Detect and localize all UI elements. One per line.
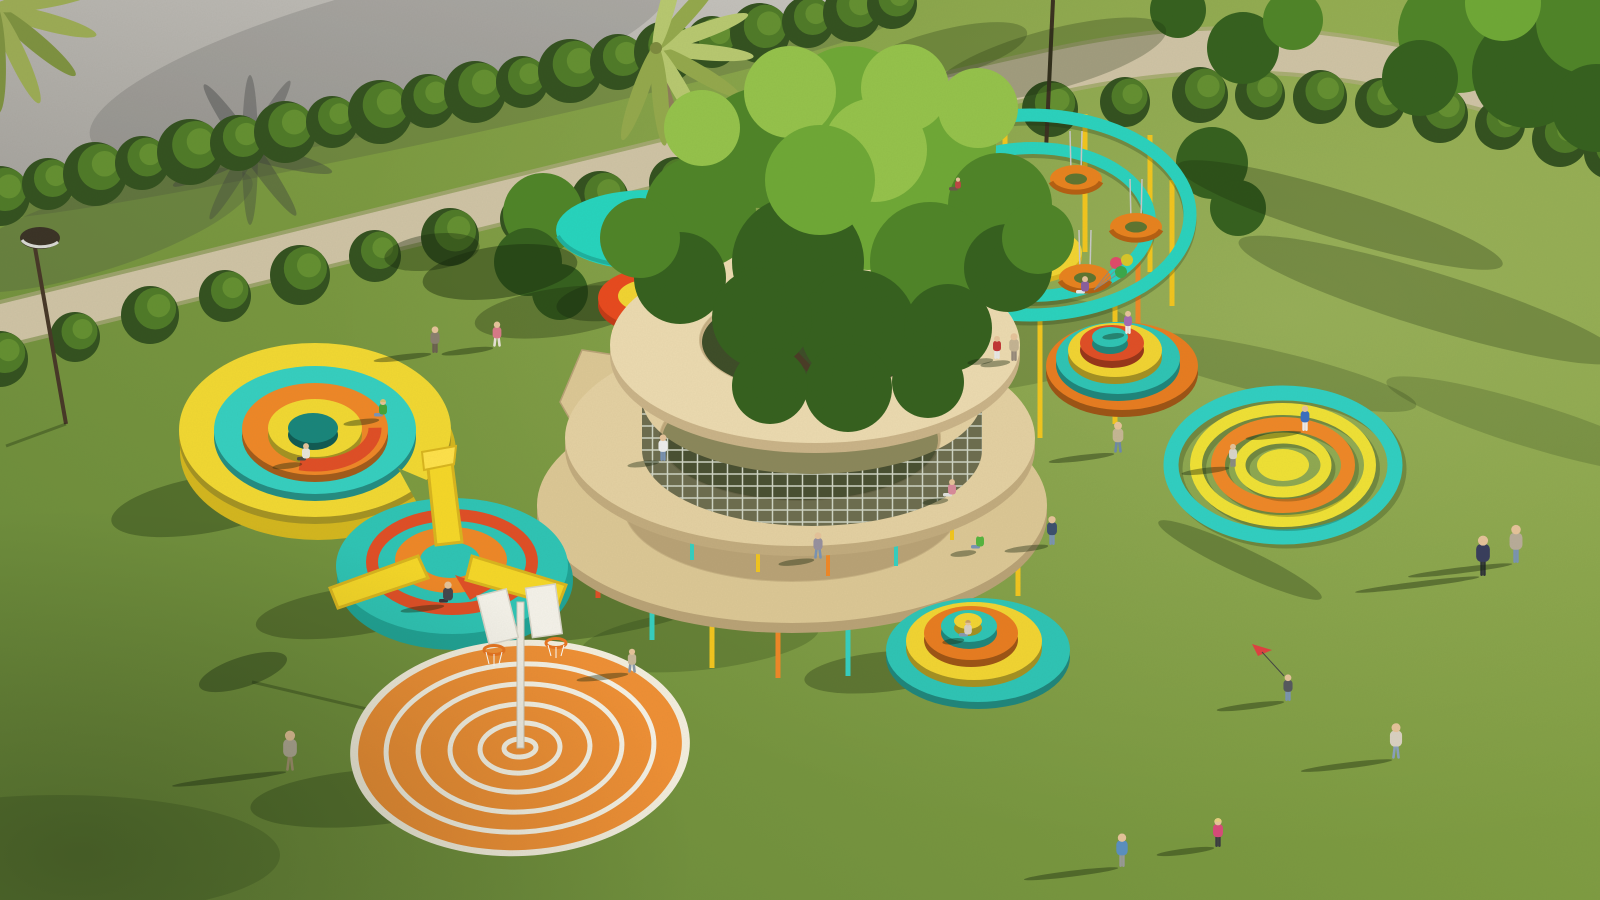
scene-svg [0, 0, 1600, 900]
playground-render: const data = JSON.parse(document.getElem… [0, 0, 1600, 900]
grain-overlay [0, 0, 1600, 900]
